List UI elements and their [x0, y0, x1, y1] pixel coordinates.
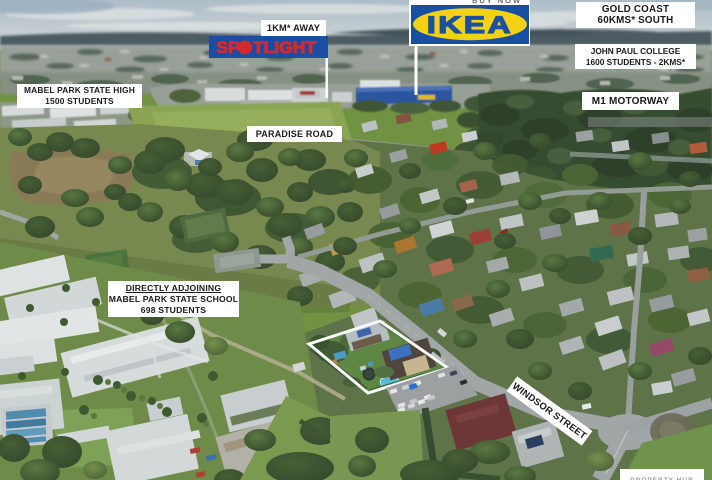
svg-text:IKEA: IKEA	[427, 12, 513, 38]
svg-text:SP: SP	[216, 38, 239, 56]
svg-text:TLIGHT: TLIGHT	[253, 38, 317, 56]
